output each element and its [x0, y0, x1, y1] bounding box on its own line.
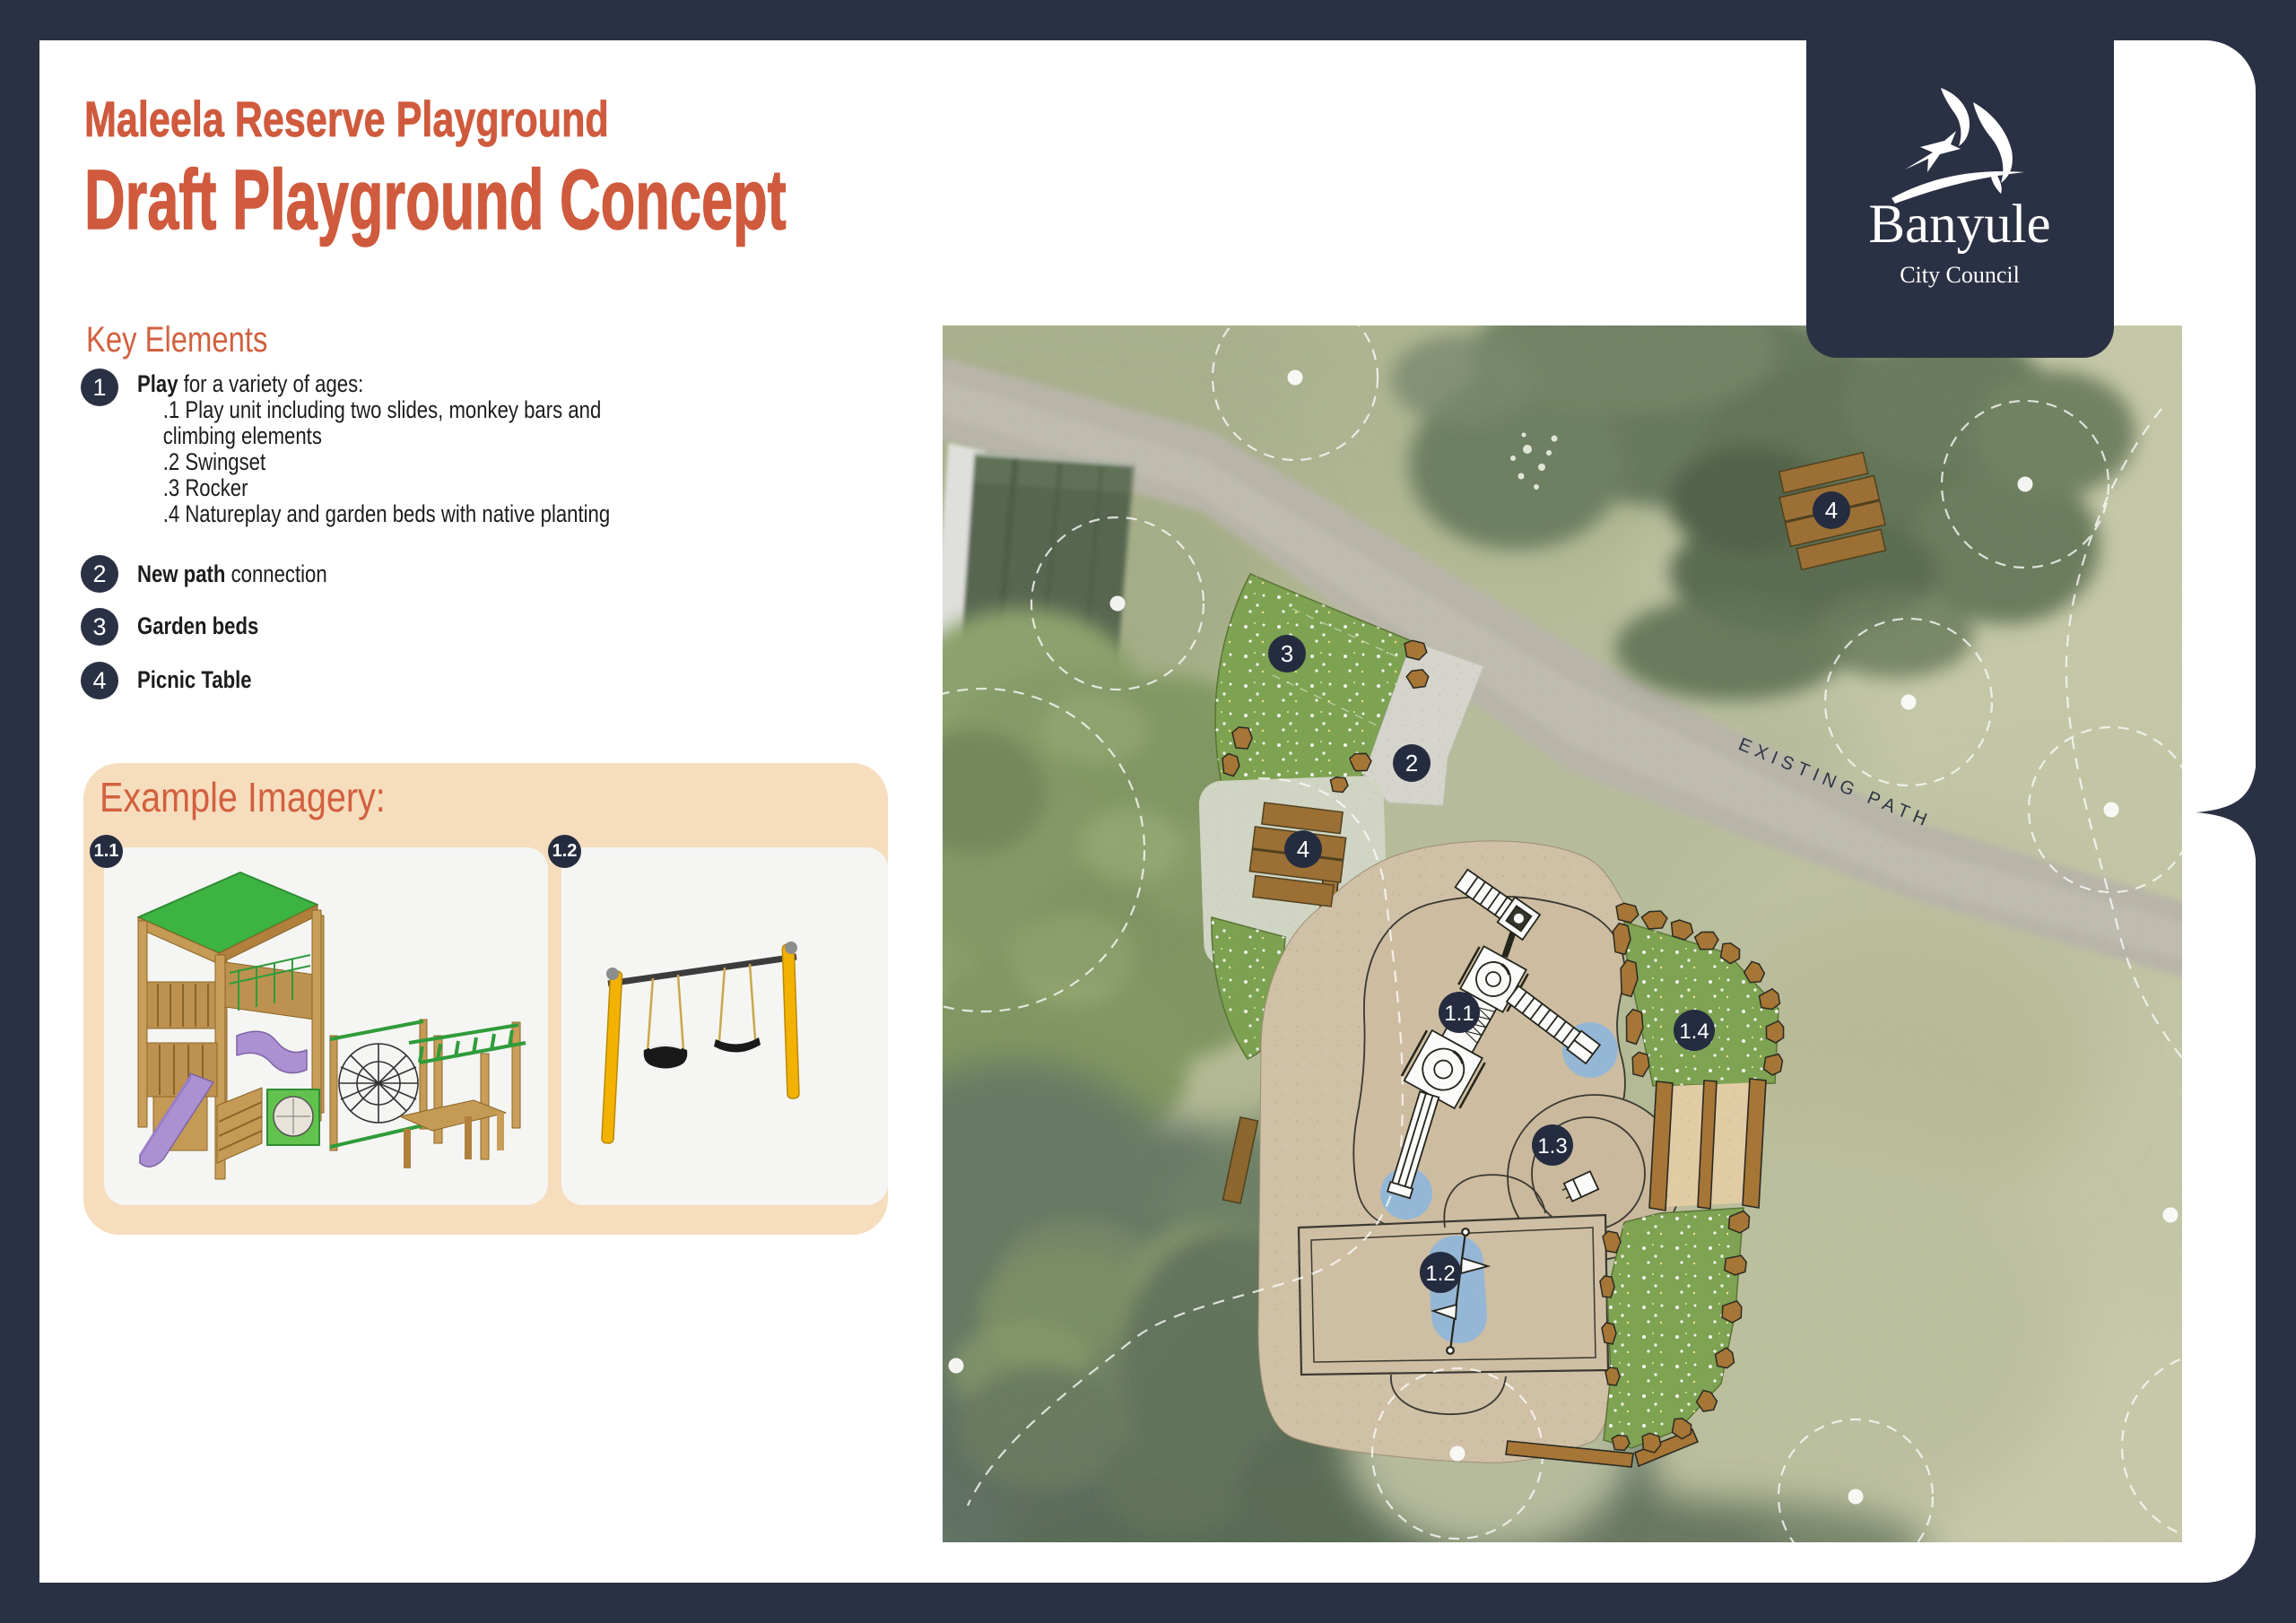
svg-text:1.3: 1.3 — [1537, 1134, 1567, 1159]
svg-text:1.2: 1.2 — [1425, 1262, 1455, 1286]
svg-text:1.4: 1.4 — [1679, 1020, 1709, 1044]
svg-text:4: 4 — [1297, 836, 1309, 863]
svg-text:City Council: City Council — [1900, 262, 2020, 288]
svg-text:1.1: 1.1 — [1444, 1002, 1474, 1026]
svg-text:Banyule: Banyule — [1868, 195, 2050, 255]
svg-text:2: 2 — [1405, 750, 1418, 777]
svg-text:4: 4 — [1825, 497, 1838, 524]
svg-text:3: 3 — [1281, 640, 1293, 667]
